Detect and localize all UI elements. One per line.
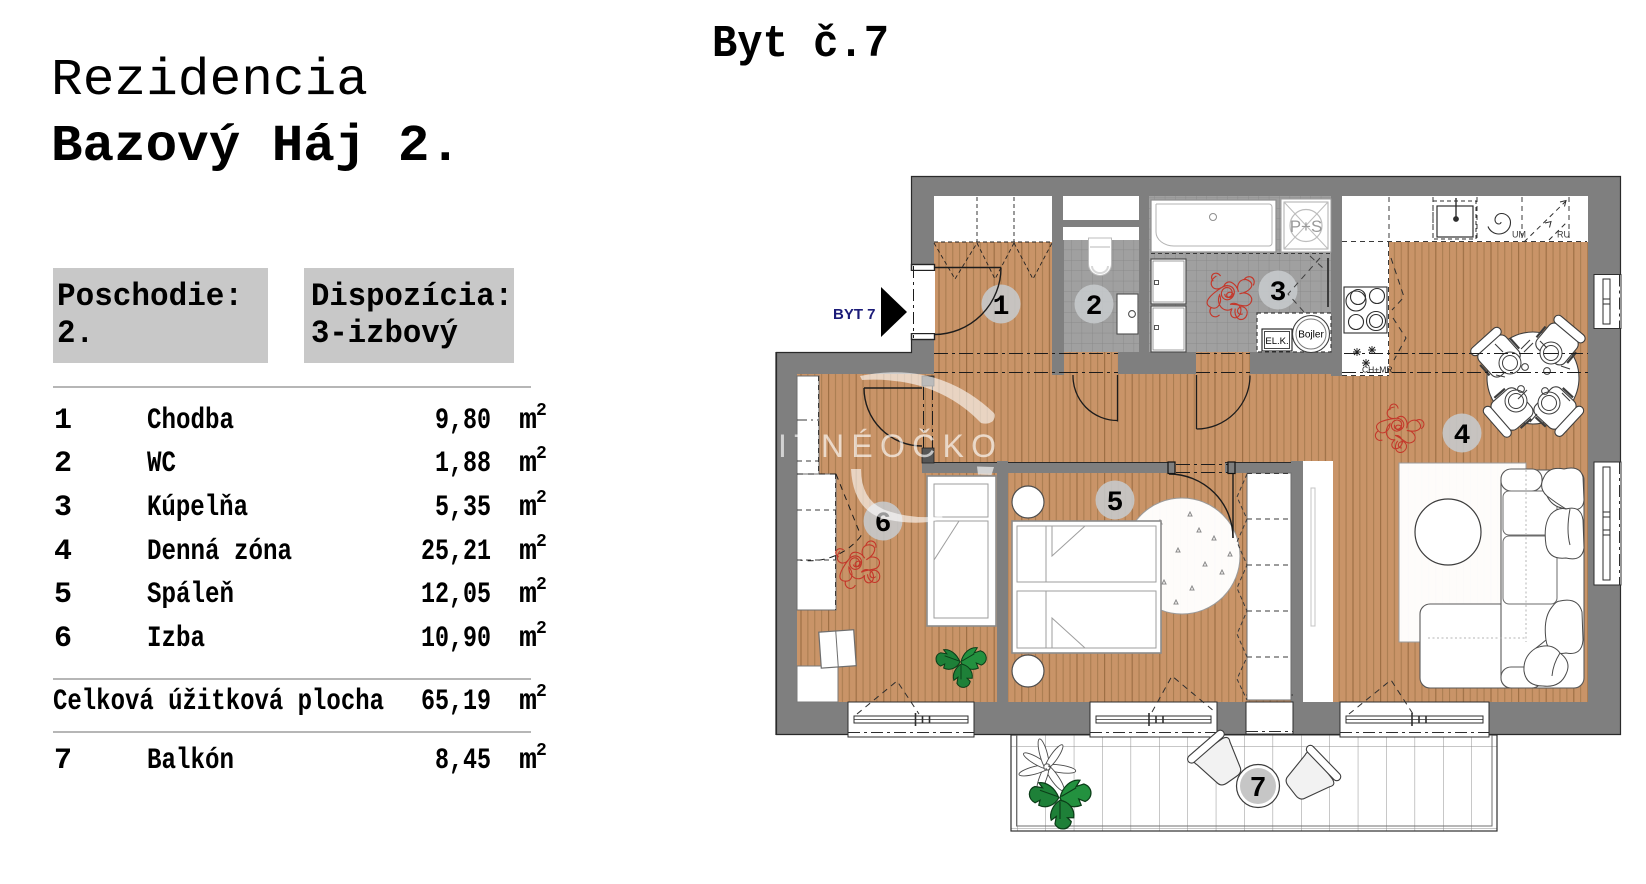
svg-text:7: 7 [1250,771,1266,802]
svg-text:Balkón: Balkón [147,744,234,778]
svg-text:65,19: 65,19 [421,685,491,719]
svg-text:1: 1 [54,404,72,438]
svg-text:3: 3 [1270,278,1287,309]
svg-text:m: m [519,685,537,719]
svg-text:5: 5 [1107,488,1124,519]
svg-text:m: m [519,404,537,438]
svg-text:3: 3 [54,491,72,525]
svg-text:7: 7 [54,744,72,778]
svg-text:3-izbový: 3-izbový [311,315,458,352]
svg-text:m: m [519,535,537,569]
svg-text:2: 2 [54,447,72,481]
svg-text:EL.K.: EL.K. [1265,336,1288,347]
svg-text:WC: WC [147,447,176,481]
svg-text:2: 2 [536,488,547,508]
svg-text:Rezidencia: Rezidencia [51,51,368,110]
svg-text:10,90: 10,90 [421,622,491,656]
svg-text:2: 2 [536,575,547,595]
svg-text:Chodba: Chodba [147,404,234,438]
svg-text:9,80: 9,80 [435,404,491,438]
svg-text:8,45: 8,45 [435,744,491,778]
svg-text:4: 4 [54,535,72,569]
svg-text:P+S: P+S [1290,217,1323,236]
svg-text:12,05: 12,05 [421,578,491,612]
svg-text:Bazový Háj 2.: Bazový Háj 2. [51,117,461,176]
svg-text:2: 2 [536,532,547,552]
svg-text:m: m [519,578,537,612]
svg-text:2: 2 [536,741,547,761]
svg-text:Dispozícia:: Dispozícia: [311,278,513,315]
svg-text:Denná zóna: Denná zóna [147,535,292,569]
svg-text:BYT 7: BYT 7 [833,306,876,323]
svg-text:2: 2 [536,682,547,702]
svg-text:4: 4 [1454,421,1471,452]
svg-text:2: 2 [536,619,547,639]
svg-text:Izba: Izba [147,622,205,656]
svg-text:Kúpelňa: Kúpelňa [147,491,248,525]
svg-text:UM: UM [1512,230,1526,240]
svg-text:2: 2 [536,444,547,464]
svg-text:25,21: 25,21 [421,535,491,569]
svg-text:2: 2 [1086,292,1103,323]
svg-text:Byt č.7: Byt č.7 [712,19,889,70]
svg-text:m: m [519,622,537,656]
svg-text:2: 2 [536,401,547,421]
svg-text:m: m [519,491,537,525]
svg-text:Celková úžitková plocha: Celková úžitková plocha [53,685,384,719]
svg-text:m: m [519,744,537,778]
svg-text:Bojler: Bojler [1298,330,1324,341]
svg-text:Spáleň: Spáleň [147,578,234,612]
svg-text:1,88: 1,88 [435,447,491,481]
svg-text:5,35: 5,35 [435,491,491,525]
svg-text:m: m [519,447,537,481]
svg-text:RU: RU [1557,230,1570,240]
svg-text:2.: 2. [57,315,94,352]
svg-text:Poschodie:: Poschodie: [57,278,243,315]
svg-text:6: 6 [54,622,72,656]
svg-text:5: 5 [54,578,72,612]
svg-text:ITNÉOČKO: ITNÉOČKO [778,428,996,464]
